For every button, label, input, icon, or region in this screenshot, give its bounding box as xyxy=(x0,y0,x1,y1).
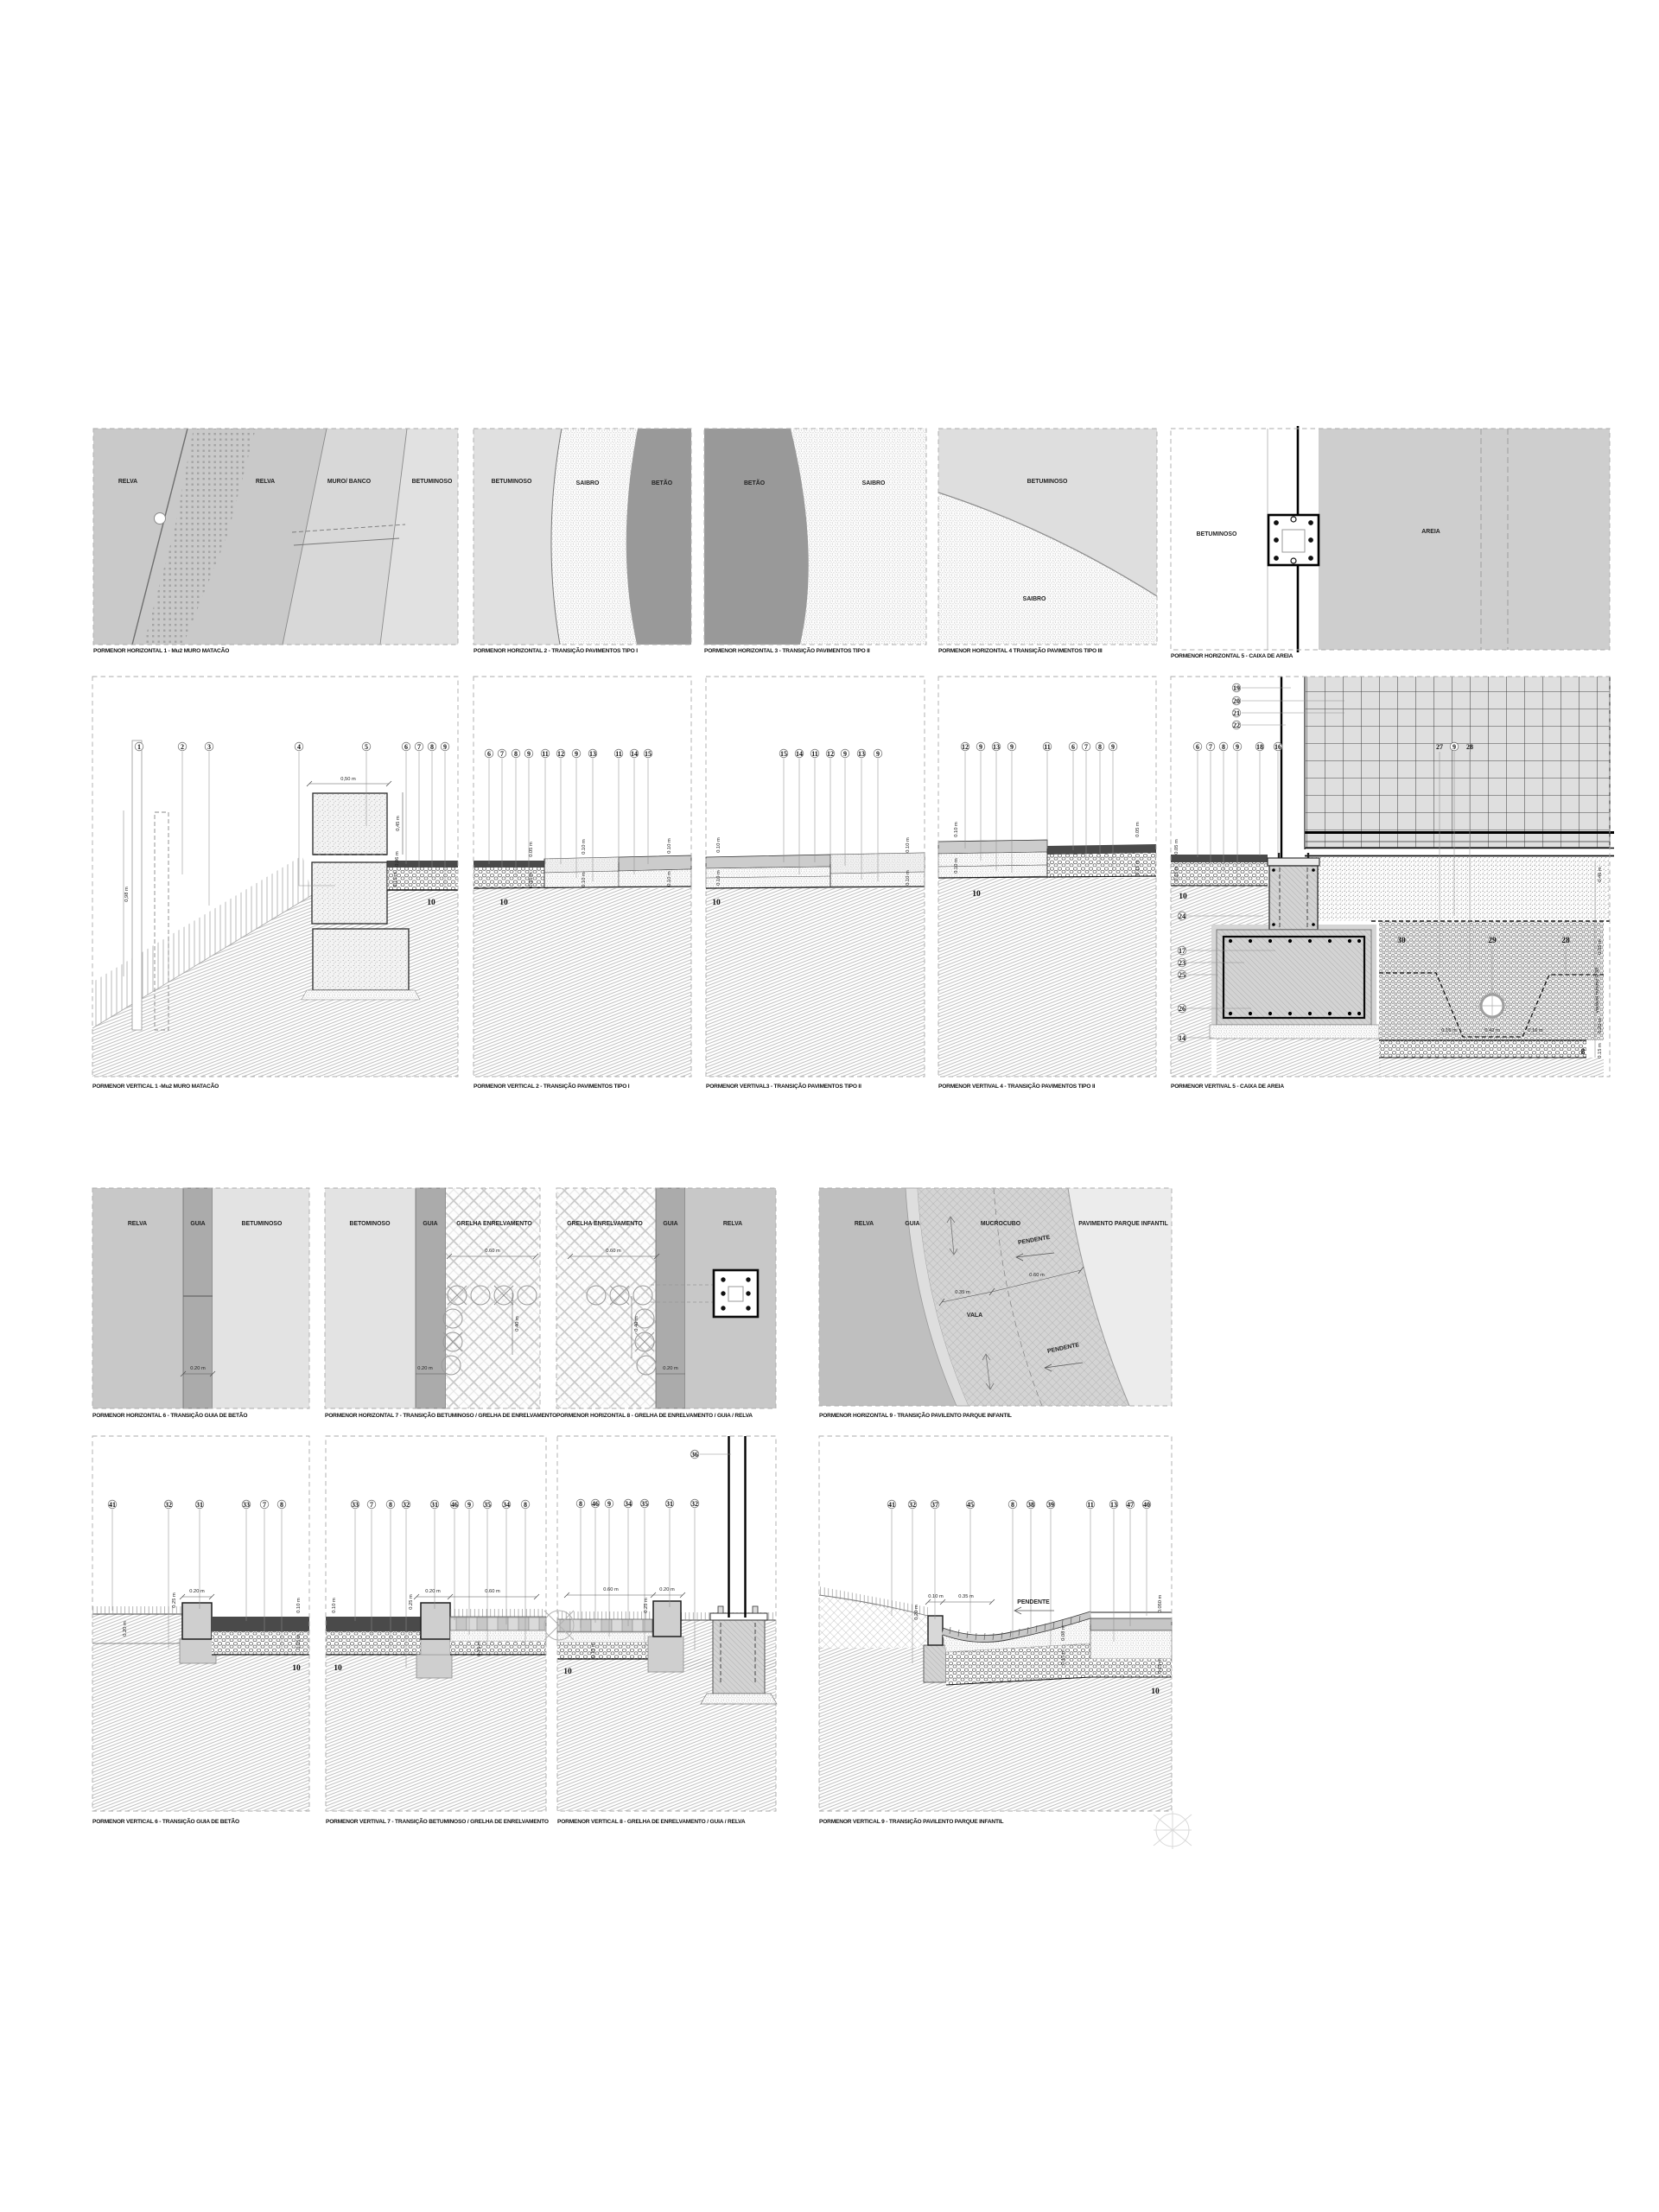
svg-text:6: 6 xyxy=(404,743,408,751)
svg-text:30: 30 xyxy=(1397,937,1406,945)
svg-text:9: 9 xyxy=(843,750,847,758)
svg-text:BETUMINOSO: BETUMINOSO xyxy=(412,479,453,485)
svg-text:0.40 m: 0.40 m xyxy=(634,1316,639,1332)
svg-text:BETUMINOSO: BETUMINOSO xyxy=(1197,531,1237,537)
svg-text:GRELHA ENRELVAMENTO: GRELHA ENRELVAMENTO xyxy=(456,1221,532,1227)
svg-text:7: 7 xyxy=(263,1501,266,1509)
svg-text:0.15 m: 0.15 m xyxy=(1135,860,1141,875)
svg-text:GUIA: GUIA xyxy=(190,1221,205,1227)
svg-text:PAVIMENTO PARQUE INFANTIL: PAVIMENTO PARQUE INFANTIL xyxy=(1078,1221,1168,1227)
svg-text:9: 9 xyxy=(607,1500,611,1508)
svg-text:0.35 m: 0.35 m xyxy=(958,1594,974,1599)
svg-text:8: 8 xyxy=(514,750,518,758)
svg-text:9: 9 xyxy=(1111,743,1115,751)
svg-text:PENDENTE: PENDENTE xyxy=(1017,1599,1050,1605)
svg-text:0.20 m: 0.20 m xyxy=(189,1589,205,1594)
svg-text:18: 18 xyxy=(1256,743,1263,751)
svg-text:10: 10 xyxy=(427,899,435,907)
svg-text:0.60 m: 0.60 m xyxy=(1029,1273,1045,1278)
svg-text:0.15 m: 0.15 m xyxy=(477,1641,482,1656)
svg-text:15: 15 xyxy=(645,750,652,758)
svg-text:15: 15 xyxy=(780,750,787,758)
svg-text:33: 33 xyxy=(352,1501,359,1509)
svg-text:24: 24 xyxy=(1179,912,1185,920)
svg-text:28: 28 xyxy=(1561,937,1570,945)
svg-text:35: 35 xyxy=(641,1500,648,1508)
svg-text:0.16 m: 0.16 m xyxy=(1441,1028,1457,1033)
svg-text:16: 16 xyxy=(1274,743,1281,751)
svg-text:0.10 m: 0.10 m xyxy=(667,838,672,854)
svg-text:0.25 m: 0.25 m xyxy=(172,1592,177,1608)
svg-text:0.10 m: 0.10 m xyxy=(582,872,587,887)
svg-text:0.35 m: 0.35 m xyxy=(1598,939,1603,955)
svg-text:1: 1 xyxy=(137,743,141,751)
svg-text:0.20 m: 0.20 m xyxy=(663,1366,678,1371)
svg-text:PORMENOR HORIZONTAL 6 - TRANSI: PORMENOR HORIZONTAL 6 - TRANSIÇÃO GUIA D… xyxy=(92,1411,247,1419)
svg-text:0,98 m: 0,98 m xyxy=(124,887,130,902)
svg-text:9: 9 xyxy=(467,1501,471,1509)
svg-text:0.10 m: 0.10 m xyxy=(716,870,721,886)
svg-text:13: 13 xyxy=(1110,1501,1117,1509)
svg-text:0.20 m: 0.20 m xyxy=(425,1589,441,1594)
svg-text:32: 32 xyxy=(403,1501,410,1509)
svg-text:8: 8 xyxy=(524,1501,527,1509)
svg-text:0.20 m: 0.20 m xyxy=(1598,1018,1603,1033)
svg-text:9: 9 xyxy=(443,743,447,751)
svg-text:13: 13 xyxy=(858,750,865,758)
svg-text:12: 12 xyxy=(557,750,564,758)
svg-text:0.60 m: 0.60 m xyxy=(606,1249,621,1254)
svg-text:MUCROCUBO: MUCROCUBO xyxy=(981,1221,1021,1227)
svg-text:BETÃO: BETÃO xyxy=(744,479,766,486)
svg-text:PORMENOR HORIZONTAL 4 TRANSIÇÃ: PORMENOR HORIZONTAL 4 TRANSIÇÃO PAVIMENT… xyxy=(938,646,1103,654)
svg-text:0.10 m: 0.10 m xyxy=(296,1598,302,1613)
svg-text:7: 7 xyxy=(1209,743,1212,751)
svg-text:GUIA: GUIA xyxy=(423,1221,437,1227)
svg-text:37: 37 xyxy=(931,1501,938,1509)
svg-text:9: 9 xyxy=(1452,743,1456,751)
svg-text:12: 12 xyxy=(827,750,834,758)
svg-text:0.05 m: 0.05 m xyxy=(1135,822,1141,837)
svg-text:7: 7 xyxy=(500,750,504,758)
svg-text:0.40 m: 0.40 m xyxy=(515,1316,520,1332)
svg-text:31: 31 xyxy=(196,1501,203,1509)
svg-text:39: 39 xyxy=(1047,1501,1054,1509)
svg-text:PORMENOR HORIZONTAL 2 - TRANSI: PORMENOR HORIZONTAL 2 - TRANSIÇÃO PAVIME… xyxy=(474,646,638,654)
svg-text:8: 8 xyxy=(1581,1048,1586,1057)
svg-text:0.46 m: 0.46 m xyxy=(1598,867,1603,882)
svg-text:7: 7 xyxy=(1084,743,1088,751)
svg-text:36: 36 xyxy=(691,1451,698,1459)
svg-text:8: 8 xyxy=(280,1501,283,1509)
svg-text:SAIBRO: SAIBRO xyxy=(576,480,600,486)
svg-text:32: 32 xyxy=(691,1500,698,1508)
svg-text:27: 27 xyxy=(1436,743,1443,751)
svg-text:0.10 m: 0.10 m xyxy=(582,839,587,855)
svg-text:0.10 m: 0.10 m xyxy=(906,837,911,853)
svg-text:RELVA: RELVA xyxy=(118,479,137,485)
svg-text:9: 9 xyxy=(1010,743,1014,751)
svg-text:PORMENOR VERTIVAL 5 - CAIXA DE: PORMENOR VERTIVAL 5 - CAIXA DE AREIA xyxy=(1171,1084,1284,1090)
svg-text:9: 9 xyxy=(575,750,578,758)
svg-text:0.10 m: 0.10 m xyxy=(954,822,959,837)
svg-text:0.20 m: 0.20 m xyxy=(190,1366,206,1371)
svg-text:0.05 m: 0.05 m xyxy=(529,842,534,857)
svg-text:10: 10 xyxy=(292,1664,301,1673)
svg-text:10: 10 xyxy=(1151,1688,1160,1696)
svg-text:PORMENOR VERTICAL 2 - TRANSIÇÃ: PORMENOR VERTICAL 2 - TRANSIÇÃO PAVIMENT… xyxy=(474,1082,630,1090)
svg-text:38: 38 xyxy=(1027,1501,1034,1509)
svg-text:variável mínimo 0.30: variável mínimo 0.30 xyxy=(1595,968,1600,1013)
svg-text:10: 10 xyxy=(563,1668,572,1676)
svg-text:PORMENOR HORIZONTAL 3 - TRANSI: PORMENOR HORIZONTAL 3 - TRANSIÇÃO PAVIME… xyxy=(704,646,870,654)
svg-text:RELVA: RELVA xyxy=(723,1221,742,1227)
svg-text:10: 10 xyxy=(499,899,508,907)
svg-text:0.16 m: 0.16 m xyxy=(1528,1028,1543,1033)
svg-text:0.20 m: 0.20 m xyxy=(417,1366,433,1371)
svg-text:0,50 m: 0,50 m xyxy=(340,777,356,782)
svg-text:28: 28 xyxy=(1466,743,1473,751)
svg-text:PORMENOR VERTICAL 8 - GRELHA D: PORMENOR VERTICAL 8 - GRELHA DE ENRELVAM… xyxy=(557,1819,746,1825)
svg-text:6: 6 xyxy=(1196,743,1199,751)
svg-text:5: 5 xyxy=(365,743,368,751)
svg-text:0.60 m: 0.60 m xyxy=(485,1589,500,1594)
svg-text:PORMENOR VERTICAL 1 -Mu2 MURO: PORMENOR VERTICAL 1 -Mu2 MURO MATACÃO xyxy=(92,1082,219,1090)
svg-text:PORMENOR VERTIVAL 7 - TRANSIÇÃ: PORMENOR VERTIVAL 7 - TRANSIÇÃO BETUMINO… xyxy=(326,1817,549,1825)
svg-text:0,45 m: 0,45 m xyxy=(396,816,401,831)
svg-text:6: 6 xyxy=(487,750,491,758)
svg-text:11: 11 xyxy=(1087,1501,1094,1509)
svg-text:7: 7 xyxy=(417,743,421,751)
svg-text:0.10 m: 0.10 m xyxy=(716,837,721,853)
svg-text:9: 9 xyxy=(527,750,531,758)
svg-text:4: 4 xyxy=(297,743,301,751)
svg-text:10: 10 xyxy=(334,1664,342,1673)
svg-text:14: 14 xyxy=(796,750,803,758)
svg-text:0.050 m: 0.050 m xyxy=(1158,1594,1163,1612)
svg-text:0.42 m: 0.42 m xyxy=(1484,1028,1500,1033)
svg-text:21: 21 xyxy=(1233,709,1240,717)
svg-text:BETOMINOSO: BETOMINOSO xyxy=(350,1221,391,1227)
svg-text:0.10 m: 0.10 m xyxy=(332,1598,337,1613)
svg-text:13: 13 xyxy=(993,743,1000,751)
svg-text:8: 8 xyxy=(1098,743,1102,751)
svg-text:0.15 m: 0.15 m xyxy=(1158,1658,1163,1674)
svg-text:8: 8 xyxy=(1011,1501,1014,1509)
svg-text:AREIA: AREIA xyxy=(1421,529,1440,535)
svg-text:10: 10 xyxy=(972,890,981,899)
svg-text:41: 41 xyxy=(109,1501,116,1509)
svg-text:34: 34 xyxy=(503,1501,510,1509)
svg-text:GRELHA ENRELVAMENTO: GRELHA ENRELVAMENTO xyxy=(567,1221,643,1227)
svg-text:0.60 m: 0.60 m xyxy=(603,1587,619,1592)
svg-text:0.05 m: 0.05 m xyxy=(1174,839,1179,855)
svg-text:19: 19 xyxy=(1233,684,1240,692)
svg-text:0.20 m: 0.20 m xyxy=(659,1587,675,1592)
svg-text:PORMENOR VERTICAL 6 - TRANSIÇÃ: PORMENOR VERTICAL 6 - TRANSIÇÃO GUIA DE … xyxy=(92,1817,239,1825)
svg-text:13: 13 xyxy=(589,750,596,758)
svg-text:2: 2 xyxy=(181,743,184,751)
svg-text:10: 10 xyxy=(1179,893,1187,901)
svg-text:PORMENOR HORIZONTAL 5 - CAIXA: PORMENOR HORIZONTAL 5 - CAIXA DE AREIA xyxy=(1171,653,1294,659)
svg-text:31: 31 xyxy=(666,1500,673,1508)
svg-text:0.15 m: 0.15 m xyxy=(591,1643,596,1658)
svg-text:BETUMINOSO: BETUMINOSO xyxy=(1027,479,1068,485)
svg-text:9: 9 xyxy=(1236,743,1239,751)
svg-text:3: 3 xyxy=(207,743,211,751)
svg-text:9: 9 xyxy=(979,743,982,751)
svg-text:0.20 m: 0.20 m xyxy=(123,1621,128,1637)
svg-text:0.35 m: 0.35 m xyxy=(955,1290,970,1295)
svg-text:33: 33 xyxy=(243,1501,250,1509)
svg-text:0.15 m: 0.15 m xyxy=(1061,1649,1066,1665)
svg-text:40: 40 xyxy=(1143,1501,1150,1509)
svg-text:0.10 m: 0.10 m xyxy=(928,1594,944,1599)
svg-text:GUIA: GUIA xyxy=(905,1221,919,1227)
svg-text:0.10 m: 0.10 m xyxy=(906,870,911,886)
svg-text:BETÃO: BETÃO xyxy=(652,479,673,486)
svg-text:RELVA: RELVA xyxy=(128,1221,147,1227)
svg-text:PORMENOR VERTICAL 9 - TRANSIÇÃ: PORMENOR VERTICAL 9 - TRANSIÇÃO PAVILENT… xyxy=(819,1817,1003,1825)
svg-text:GUIA: GUIA xyxy=(663,1221,677,1227)
svg-text:10: 10 xyxy=(712,899,721,907)
svg-text:23: 23 xyxy=(1179,959,1185,967)
svg-text:RELVA: RELVA xyxy=(256,479,275,485)
svg-text:26: 26 xyxy=(1179,1005,1185,1013)
svg-text:0.10 m: 0.10 m xyxy=(667,871,672,887)
svg-text:14: 14 xyxy=(1179,1034,1185,1042)
svg-text:PORMENOR HORIZONTAL 1 - Mu2 MU: PORMENOR HORIZONTAL 1 - Mu2 MURO MATACÃO xyxy=(93,646,229,654)
svg-text:8: 8 xyxy=(389,1501,392,1509)
svg-text:46: 46 xyxy=(451,1501,458,1509)
svg-text:31: 31 xyxy=(431,1501,438,1509)
svg-text:11: 11 xyxy=(542,750,549,758)
svg-text:0,15 m: 0,15 m xyxy=(393,872,398,887)
svg-text:8: 8 xyxy=(430,743,434,751)
svg-text:0.60 m: 0.60 m xyxy=(485,1249,500,1254)
svg-text:8: 8 xyxy=(1222,743,1225,751)
svg-text:0.25 m: 0.25 m xyxy=(409,1594,414,1610)
svg-text:11: 11 xyxy=(1044,743,1051,751)
svg-text:0.10 m: 0.10 m xyxy=(954,858,959,874)
svg-text:0.08 m: 0.08 m xyxy=(1061,1625,1066,1641)
svg-text:32: 32 xyxy=(165,1501,172,1509)
svg-text:20: 20 xyxy=(1233,697,1240,705)
svg-text:11: 11 xyxy=(615,750,622,758)
svg-text:6: 6 xyxy=(1071,743,1075,751)
svg-text:11: 11 xyxy=(811,750,818,758)
svg-text:47: 47 xyxy=(1127,1501,1134,1509)
svg-text:0,06 m: 0,06 m xyxy=(395,851,400,867)
svg-text:0.20 m: 0.20 m xyxy=(914,1605,919,1620)
svg-text:29: 29 xyxy=(1488,937,1497,945)
svg-text:22: 22 xyxy=(1233,721,1240,729)
svg-text:0.15 m: 0.15 m xyxy=(296,1634,302,1649)
svg-text:VALA: VALA xyxy=(967,1313,982,1319)
svg-text:SAIBRO: SAIBRO xyxy=(862,480,886,486)
svg-text:32: 32 xyxy=(909,1501,916,1509)
svg-text:12: 12 xyxy=(962,743,969,751)
svg-text:BETUMINOSO: BETUMINOSO xyxy=(242,1221,283,1227)
svg-text:0.15 m: 0.15 m xyxy=(529,872,534,887)
svg-text:45: 45 xyxy=(967,1501,974,1509)
svg-text:PORMENOR VERTIVAL3 - TRANSIÇÃO: PORMENOR VERTIVAL3 - TRANSIÇÃO PAVIMENTO… xyxy=(706,1082,861,1090)
svg-text:17: 17 xyxy=(1179,947,1185,955)
svg-text:41: 41 xyxy=(888,1501,895,1509)
svg-text:PORMENOR HORIZONTAL 8 - GRELHA: PORMENOR HORIZONTAL 8 - GRELHA DE ENRELV… xyxy=(556,1413,753,1419)
svg-text:9: 9 xyxy=(876,750,880,758)
svg-text:PORMENOR VERTIVAL 4 - TRANSIÇÃ: PORMENOR VERTIVAL 4 - TRANSIÇÃO PAVIMENT… xyxy=(938,1082,1096,1090)
svg-text:0.25 m: 0.25 m xyxy=(644,1598,649,1613)
svg-text:RELVA: RELVA xyxy=(855,1221,874,1227)
svg-text:0.15 m: 0.15 m xyxy=(1598,1043,1603,1058)
svg-text:14: 14 xyxy=(631,750,638,758)
svg-text:46: 46 xyxy=(592,1500,599,1508)
svg-text:PORMENOR HORIZONTAL 7 - TRANSI: PORMENOR HORIZONTAL 7 - TRANSIÇÃO BETUMI… xyxy=(325,1411,556,1419)
svg-text:7: 7 xyxy=(370,1501,373,1509)
svg-text:MURO/ BANCO: MURO/ BANCO xyxy=(327,479,372,485)
svg-text:0.15 m: 0.15 m xyxy=(1174,866,1179,881)
svg-text:SAIBRO: SAIBRO xyxy=(1023,596,1046,602)
svg-text:34: 34 xyxy=(625,1500,632,1508)
svg-text:35: 35 xyxy=(484,1501,491,1509)
svg-text:PORMENOR HORIZONTAL 9 - TRANSI: PORMENOR HORIZONTAL 9 - TRANSIÇÃO PAVILE… xyxy=(819,1411,1012,1419)
svg-text:25: 25 xyxy=(1179,971,1185,979)
svg-text:BETUMINOSO: BETUMINOSO xyxy=(492,479,532,485)
svg-text:8: 8 xyxy=(579,1500,582,1508)
